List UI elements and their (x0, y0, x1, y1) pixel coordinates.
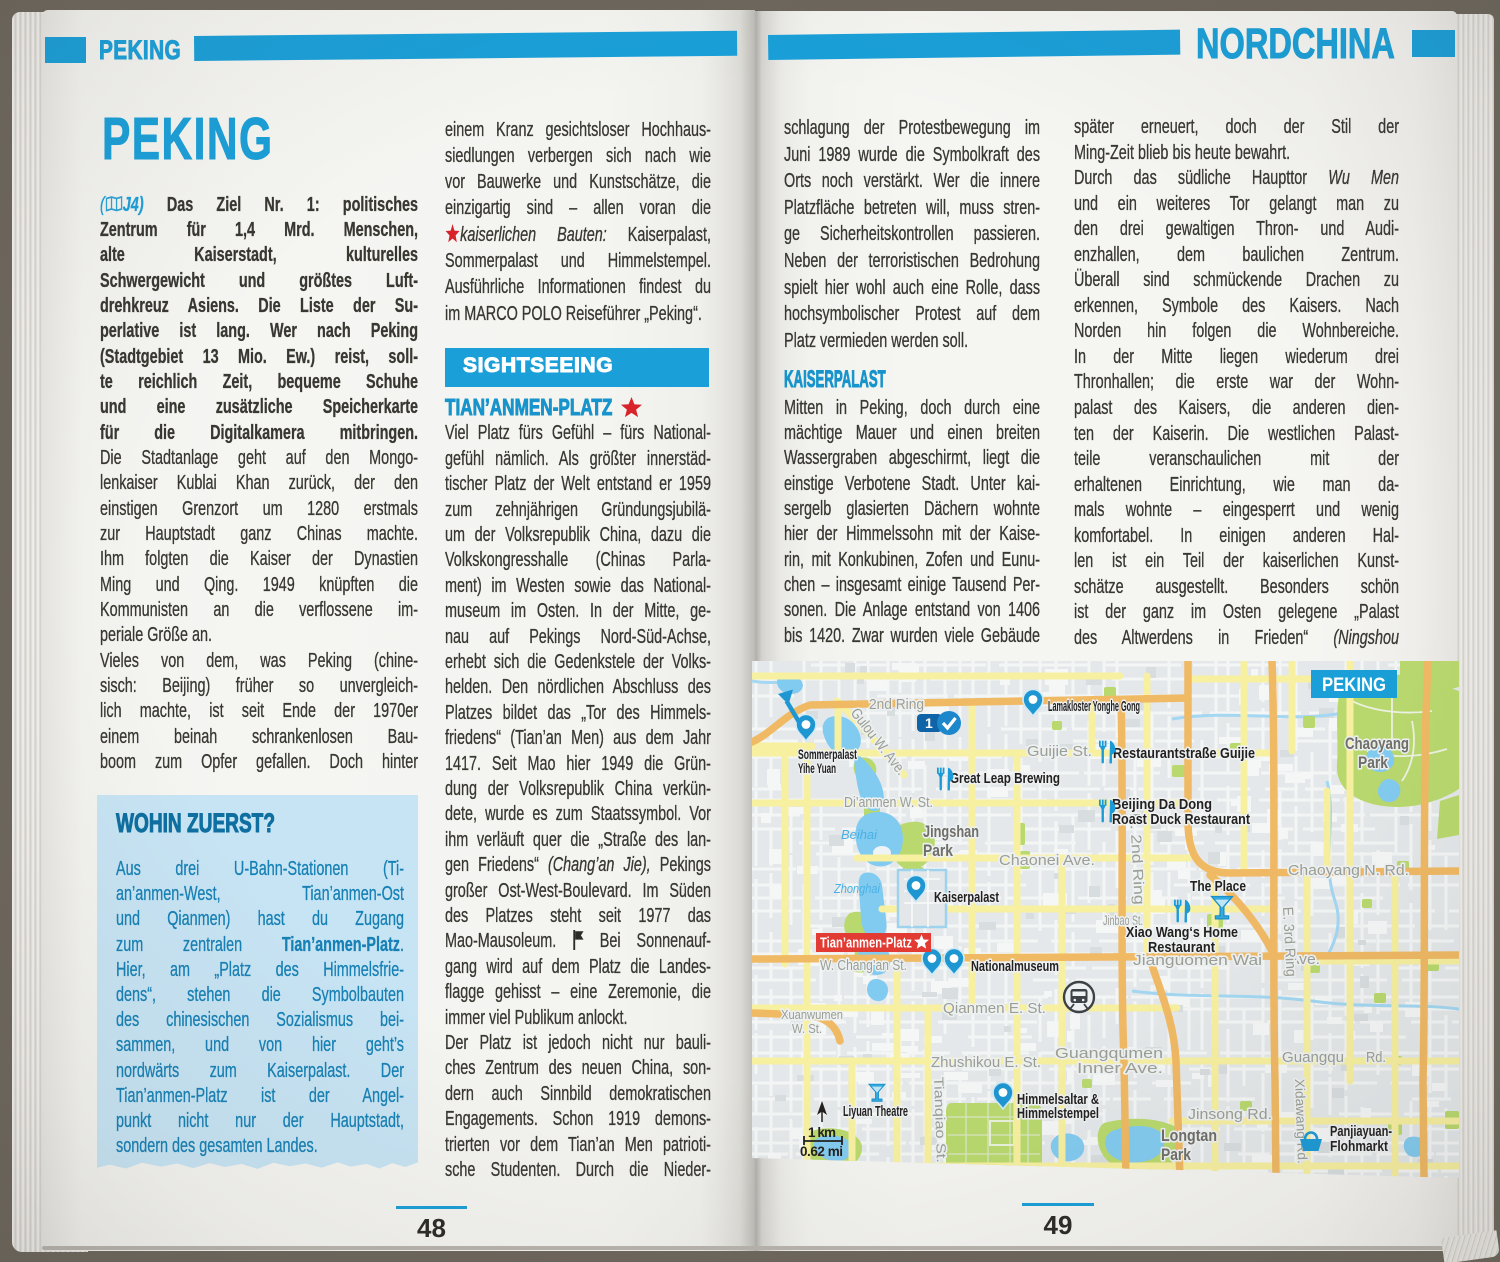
svg-text:PEKING: PEKING (1322, 675, 1386, 696)
svg-text:1 km: 1 km (808, 1125, 836, 1140)
svg-text:Chaoyang N. Rd.: Chaoyang N. Rd. (1288, 862, 1409, 879)
svg-text:Tianqiao St.: Tianqiao St. (931, 1077, 949, 1163)
svg-text:W. St.: W. St. (792, 1021, 822, 1036)
svg-text:Tian’anmen-Platz: Tian’anmen-Platz (820, 936, 912, 952)
svg-text:Lamakloster Yonghe Gong: Lamakloster Yonghe Gong (1048, 699, 1140, 715)
svg-text:2nd Ring: 2nd Ring (869, 696, 924, 713)
svg-text:Restaurantstraße Guijie: Restaurantstraße Guijie (1113, 746, 1255, 762)
svg-text:Chaonei Ave.: Chaonei Ave. (999, 852, 1095, 869)
svg-text:Flohmarkt: Flohmarkt (1330, 1139, 1388, 1155)
svg-text:1: 1 (925, 715, 933, 731)
svg-text:Panjiayuan-: Panjiayuan- (1330, 1124, 1392, 1140)
svg-text:Xidawang Rd.: Xidawang Rd. (1292, 1079, 1310, 1164)
svg-text:Xuanwumen: Xuanwumen (781, 1007, 843, 1022)
svg-text:Roast Duck Restaurant: Roast Duck Restaurant (1112, 812, 1250, 828)
svg-text:Rd.: Rd. (1366, 1049, 1386, 1066)
svg-text:Park: Park (923, 842, 954, 860)
svg-text:Di’anmen W. St.: Di’anmen W. St. (844, 794, 933, 811)
svg-text:Guangqu: Guangqu (1282, 1049, 1344, 1066)
svg-text:Yihe Yuan: Yihe Yuan (798, 760, 836, 776)
svg-text:Jingshan: Jingshan (923, 823, 979, 841)
svg-text:Beihai: Beihai (841, 827, 878, 842)
svg-text:Beijing Da Dong: Beijing Da Dong (1112, 797, 1212, 813)
svg-text:Himmelstempel: Himmelstempel (1017, 1106, 1099, 1122)
svg-text:W. Chang’an St.: W. Chang’an St. (820, 957, 907, 974)
svg-text:Liyuan Theatre: Liyuan Theatre (843, 1104, 908, 1120)
svg-text:Zhonghai: Zhonghai (833, 881, 881, 896)
svg-text:0.62 mi: 0.62 mi (800, 1144, 843, 1159)
svg-text:The Place: The Place (1190, 879, 1246, 895)
svg-text:Zhushikou E. St.: Zhushikou E. St. (931, 1054, 1041, 1071)
svg-text:Nationalmuseum: Nationalmuseum (971, 959, 1059, 975)
svg-text:Longtan: Longtan (1161, 1127, 1217, 1145)
svg-text:Xiao Wang‘s Home: Xiao Wang‘s Home (1126, 925, 1238, 941)
svg-text:Qianmen E. St.: Qianmen E. St. (943, 1000, 1046, 1017)
svg-text:Kaiserpalast: Kaiserpalast (934, 890, 999, 906)
svg-text:Jinsong Rd.: Jinsong Rd. (1188, 1106, 1272, 1123)
svg-text:Inner Ave.: Inner Ave. (1077, 1060, 1163, 1077)
svg-text:Guijie St.: Guijie St. (1027, 743, 1092, 760)
svg-text:Restaurant: Restaurant (1148, 940, 1215, 956)
svg-text:Park: Park (1161, 1146, 1192, 1164)
svg-text:Chaoyang: Chaoyang (1345, 735, 1409, 753)
svg-text:Park: Park (1358, 754, 1389, 772)
svg-text:Great Leap Brewing: Great Leap Brewing (950, 771, 1060, 787)
